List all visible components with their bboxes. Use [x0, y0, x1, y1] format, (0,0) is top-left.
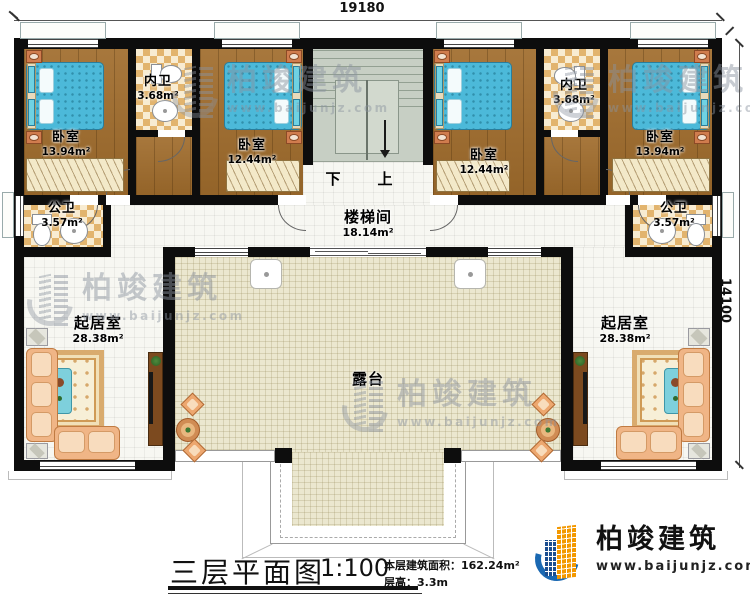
dimension-line-right [739, 44, 740, 468]
corner-mark [9, 11, 18, 19]
floor-plan: 下 上 [0, 0, 750, 598]
floor-terrace-bay [292, 452, 444, 526]
room-area: 13.94m² [16, 146, 116, 159]
cushion [28, 66, 35, 92]
wall [303, 38, 313, 165]
wall [128, 130, 158, 137]
sofa-cushion [620, 431, 647, 453]
room-name: 内卫 [540, 78, 608, 94]
cushion [293, 66, 300, 92]
loveseat [54, 426, 120, 460]
wall [423, 38, 433, 165]
plant-icon [575, 356, 585, 366]
room-label-ensuite-left: 内卫 3.68m² [124, 74, 192, 102]
plant-icon [151, 356, 161, 366]
room-name: 起居室 [564, 314, 686, 332]
pillow [274, 99, 289, 124]
room-name: 露台 [303, 370, 433, 388]
nightstand [434, 50, 450, 63]
room-name: 卧室 [434, 148, 534, 164]
company-url: www.baijunjz.com [596, 559, 750, 574]
wardrobe [612, 158, 710, 192]
door-gap [158, 130, 185, 137]
sliding-door [310, 248, 426, 256]
corner-mark [725, 26, 734, 35]
wardrobe [26, 158, 124, 192]
window-sill [2, 192, 14, 238]
end-table [26, 443, 48, 459]
floor-height-note: 层高：3.3m [384, 574, 448, 590]
dimension-top-value: 19180 [327, 1, 397, 16]
door-gap [606, 195, 630, 205]
sofa-cushion [683, 382, 703, 407]
window [195, 248, 248, 256]
room-area: 3.68m² [540, 94, 608, 107]
floor-area-note: 本层建筑面积：162.24m² [384, 557, 520, 573]
stair-direction-arrow [384, 120, 386, 150]
cushion [436, 66, 443, 92]
room-label-terrace: 露台 [303, 370, 433, 388]
room-label-ensuite-right: 内卫 3.68m² [540, 78, 608, 106]
cushion [701, 66, 708, 92]
room-name: 公卫 [24, 201, 100, 217]
room-label-bath-left: 公卫 3.57m² [24, 201, 100, 229]
bed [26, 62, 104, 130]
room-area: 28.38m² [564, 332, 686, 345]
room-area: 12.44m² [434, 164, 534, 177]
wall [541, 247, 573, 257]
room-name: 卧室 [202, 138, 302, 154]
wall [536, 49, 544, 195]
sofa-cushion [31, 382, 51, 407]
window [444, 39, 514, 48]
room-area: 3.68m² [124, 90, 192, 103]
sofa-cushion [683, 352, 703, 377]
nightstand [434, 131, 450, 144]
floor-terrace [175, 257, 561, 460]
room-area: 18.14m² [303, 226, 433, 239]
sink-icon [152, 100, 178, 122]
window-sill [214, 22, 300, 39]
wall [14, 247, 103, 257]
room-name: 内卫 [124, 74, 192, 90]
sofa-cushion [650, 431, 677, 453]
bed [434, 62, 512, 130]
title-underline-thin [168, 593, 422, 594]
window [638, 39, 708, 48]
room-label-bath-right: 公卫 3.57m² [636, 201, 712, 229]
title-underline [168, 586, 418, 590]
window-sill [630, 22, 716, 39]
sofa-cushion [683, 412, 703, 437]
dimension-line-top [14, 20, 722, 21]
sofa-cushion [31, 352, 51, 377]
loveseat [616, 426, 682, 460]
room-area: 13.94m² [610, 146, 710, 159]
room-label-living-right: 起居室 28.38m² [564, 314, 686, 345]
wall [14, 38, 722, 49]
room-label-bedroom-tcr: 卧室 12.44m² [434, 148, 534, 176]
cushion [293, 99, 300, 125]
cushion [701, 99, 708, 125]
window [28, 39, 98, 48]
company-name: 柏竣建筑 [596, 524, 720, 555]
door-gap [106, 195, 130, 205]
white-table [250, 259, 282, 289]
room-name: 公卫 [636, 201, 712, 217]
terrace-post [275, 448, 292, 463]
wall [192, 49, 200, 195]
room-area: 3.57m² [636, 217, 712, 230]
nightstand [26, 50, 42, 63]
sofa-cushion [88, 431, 115, 453]
window-sill [722, 192, 734, 238]
room-name: 卧室 [16, 130, 116, 146]
pillow [39, 99, 54, 124]
pillow [447, 68, 462, 93]
door-gap [278, 195, 306, 205]
company-logo-icon [536, 524, 588, 586]
nightstand [694, 50, 710, 63]
sofa [26, 348, 58, 442]
window-sill [20, 22, 106, 39]
cushion [28, 99, 35, 125]
window [601, 461, 696, 470]
wall [163, 247, 175, 460]
room-name: 起居室 [37, 314, 159, 332]
cushion [436, 99, 443, 125]
terrace-post [444, 448, 461, 463]
window-sill [436, 22, 522, 39]
sofa [678, 348, 710, 442]
end-table [688, 443, 710, 459]
nightstand [286, 50, 302, 63]
room-label-bedroom-tr: 卧室 13.94m² [610, 130, 710, 158]
room-label-bedroom-tl: 卧室 13.94m² [16, 130, 116, 158]
eave-strip [8, 471, 172, 480]
wall [248, 247, 310, 257]
tv-screen [583, 372, 587, 424]
stair-rail [366, 80, 368, 160]
room-area: 12.44m² [202, 154, 302, 167]
terrace-table [176, 418, 200, 442]
door-gap [430, 195, 458, 205]
stair-down-label: 下 [318, 168, 348, 189]
end-table [688, 328, 710, 346]
bed [224, 62, 302, 130]
pillow [682, 68, 697, 93]
window [222, 39, 292, 48]
window [15, 196, 24, 236]
wall [536, 130, 551, 137]
company-logo: 柏竣建筑 www.baijunjz.com [536, 524, 750, 586]
room-name: 卧室 [610, 130, 710, 146]
window [40, 461, 135, 470]
room-area: 28.38m² [37, 332, 159, 345]
stair-up-label: 上 [370, 168, 400, 189]
pillow [274, 68, 289, 93]
white-table [454, 259, 486, 289]
window [488, 248, 541, 256]
drawing-scale: 1:100 [320, 554, 389, 582]
door-gap [551, 130, 578, 137]
window [712, 196, 721, 236]
dimension-right-value: 14100 [718, 273, 733, 329]
wall [561, 247, 573, 460]
sofa-cushion [58, 431, 85, 453]
sofa-cushion [31, 412, 51, 437]
room-name: 楼梯间 [303, 208, 433, 226]
pillow [447, 99, 462, 124]
wall [185, 130, 200, 137]
pillow [682, 99, 697, 124]
bed [632, 62, 710, 130]
room-area: 3.57m² [24, 217, 100, 230]
wall [578, 130, 608, 137]
wall [426, 247, 488, 257]
eave-strip [564, 471, 728, 480]
room-label-bedroom-tcl: 卧室 12.44m² [202, 138, 302, 166]
tv-screen [149, 372, 153, 424]
wall [163, 247, 195, 257]
room-label-stair-hall: 楼梯间 18.14m² [303, 208, 433, 239]
drawing-title: 三层平面图 [170, 551, 325, 591]
pillow [39, 68, 54, 93]
wall [633, 247, 722, 257]
room-label-living-left: 起居室 28.38m² [37, 314, 159, 345]
stair-arrow-head-icon [380, 150, 390, 158]
